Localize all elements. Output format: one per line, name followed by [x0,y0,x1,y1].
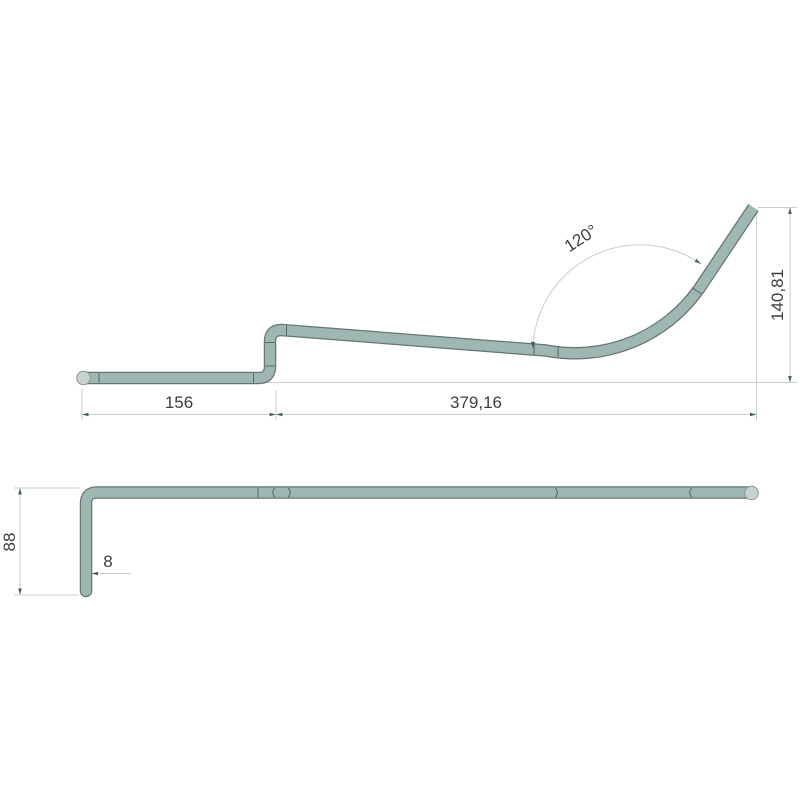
dim-right-length-label: 379,16 [450,393,502,412]
dim-left-length-label: 156 [165,393,193,412]
technical-drawing-canvas: 156 379,16 140,81 120° 88 8 [0,0,800,800]
tube-end-cap-front [77,371,91,385]
dim-tube-diameter-label: 8 [103,552,112,571]
dim-leg-length-label: 88 [0,533,19,552]
dim-end-height-label: 140,81 [768,269,787,321]
tube-end-cap-top [745,486,759,500]
drawing-background [0,0,800,800]
